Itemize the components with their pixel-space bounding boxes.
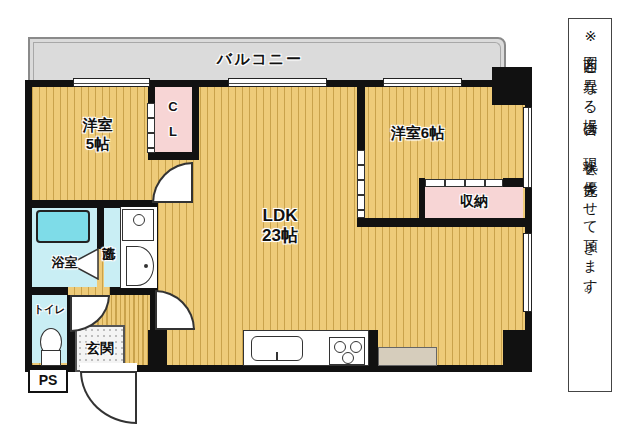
storage-sliding-door-icon	[425, 179, 503, 187]
window-bedroom6-right-icon	[523, 107, 532, 188]
cl-folding-door-icon	[147, 103, 155, 153]
bedroom6-label: 洋室6帖	[365, 124, 470, 143]
washroom-label: 洗面	[100, 236, 116, 240]
ldk-label: LDK 23帖	[235, 206, 325, 246]
bedroom5-label-line1: 洋室	[83, 116, 113, 133]
bedroom5-label-line2: 5帖	[86, 135, 109, 152]
wall-cl-right	[192, 87, 199, 160]
disclaimer-box: ※図面と異なる場合は、現状を優先させて頂きます。	[568, 18, 612, 392]
kitchen-side-counter	[378, 347, 437, 366]
ldk-label-line2: 23帖	[262, 226, 298, 245]
wall-bedroom6-left	[357, 87, 365, 150]
cl-label-line2: L	[169, 124, 177, 139]
bathtub-icon	[36, 210, 90, 243]
wall-washroom-bottom-right	[110, 287, 158, 295]
window-bedroom5-icon	[73, 78, 150, 87]
window-ldk-right-icon	[523, 233, 532, 312]
wall-entrance-right-block	[148, 330, 167, 372]
ldk-label-line1: LDK	[263, 206, 298, 225]
wall-bath-washroom	[97, 207, 104, 249]
closet-cl-label: C L	[159, 94, 187, 144]
toilet-tank-icon	[41, 350, 61, 366]
storage-label: 収納	[425, 193, 523, 211]
pipe-space-label: PS	[28, 372, 68, 390]
bedroom5-label: 洋室 5帖	[60, 116, 135, 154]
pillar-top-right	[492, 67, 532, 105]
wall-storage-bottom	[357, 218, 532, 227]
wall-kitchen-stub	[368, 330, 378, 372]
entrance-door-swing-icon	[80, 371, 137, 424]
cl-label-line1: C	[168, 99, 177, 114]
toilet-label: トイレ	[31, 303, 68, 316]
floorplan-canvas: バルコニー	[0, 0, 640, 430]
kitchen-sink-icon	[251, 336, 303, 361]
wall-cl-bottom	[148, 152, 199, 160]
window-ldk-top-icon	[228, 78, 327, 87]
stove-icon	[329, 337, 365, 365]
disclaimer-text: ※図面と異なる場合は、現状を優先させて頂きます。	[581, 19, 600, 391]
entrance-label: 玄関	[75, 340, 125, 358]
balcony-label: バルコニー	[190, 50, 330, 69]
wall-bottom-right-block	[503, 330, 525, 365]
washing-machine-pan-icon	[122, 209, 154, 241]
wall-washroom-bottom-left	[25, 287, 68, 295]
wall-storage-top-stub	[503, 178, 525, 187]
bedroom6-sliding-door-icon	[357, 150, 365, 218]
bathroom-label: 浴室	[32, 255, 97, 271]
window-bedroom6-top-icon	[383, 78, 462, 87]
